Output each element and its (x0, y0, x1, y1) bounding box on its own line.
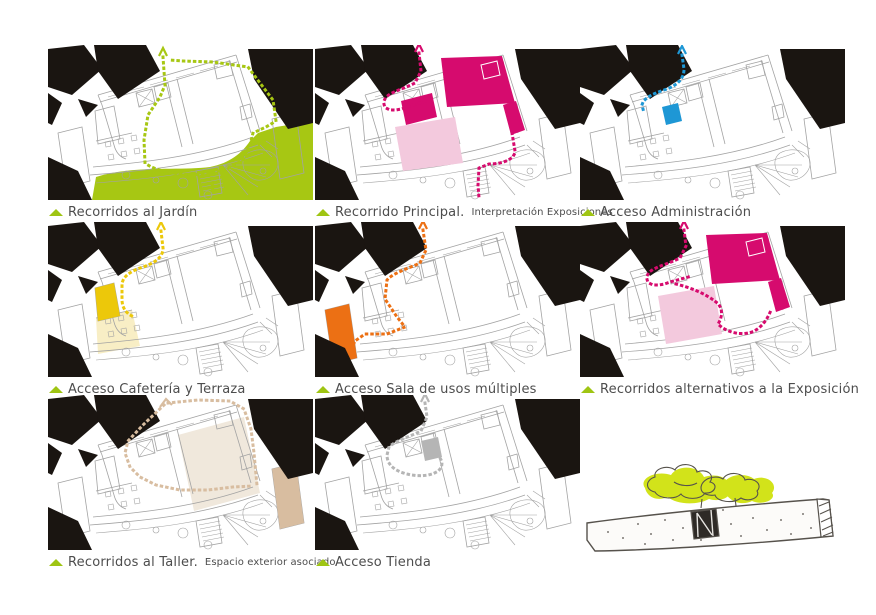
taller-area-light (178, 417, 260, 511)
exposicion-hall-area (706, 233, 780, 284)
panel-label: Recorridos alternativos a la Exposición (600, 382, 859, 397)
administracion-area (662, 103, 682, 125)
route-arrow (160, 399, 172, 407)
panel-label: Recorrido Principal. (335, 205, 465, 220)
route-arrow (157, 222, 165, 230)
exposiciones-hall-area (441, 56, 515, 107)
panel-acceso-sala: Acceso Sala de usos múltiples (315, 222, 580, 398)
caption-administracion: Acceso Administración (580, 203, 845, 221)
panel-label: Acceso Administración (600, 205, 751, 220)
legend-triangle-icon (48, 207, 64, 217)
panel-acceso-administracion: Acceso Administración (580, 45, 845, 221)
legend-triangle-icon (315, 207, 331, 217)
wall (587, 499, 833, 551)
hand-sketch (583, 462, 845, 564)
plan-acceso-tienda (315, 395, 580, 550)
plan-recorridos-alternativos (580, 222, 845, 377)
panel-label: Acceso Tienda (335, 555, 431, 570)
legend-triangle-icon (315, 557, 331, 567)
sketch-wall-elevation (583, 462, 845, 560)
caption-principal: Recorrido Principal. Interpretación Expo… (315, 203, 580, 221)
interpretacion-room-area (401, 93, 437, 125)
legend-triangle-icon (48, 384, 64, 394)
panel-recorridos-alternativos: Recorridos alternativos a la Exposición (580, 222, 845, 398)
route-arrow (680, 222, 688, 229)
exposicion-strip-area (768, 278, 790, 312)
cafeteria-area (95, 283, 120, 321)
panel-recorridos-taller: Recorridos al Taller. Espacio exterior a… (48, 395, 313, 571)
panel-label: Recorridos al Taller. (68, 555, 198, 570)
exposiciones-strip-area (503, 101, 525, 135)
exposicion-area-light (658, 286, 722, 344)
panel-recorrido-principal: Recorrido Principal. Interpretación Expo… (315, 45, 580, 221)
panel-acceso-tienda: Acceso Tienda (315, 395, 580, 571)
route-arrow (421, 395, 429, 402)
legend-triangle-icon (48, 557, 64, 567)
panel-label: Recorridos al Jardín (68, 205, 197, 220)
plan-recorrido-principal (315, 45, 580, 200)
route-arrow (419, 222, 427, 229)
interpretacion-area-light (395, 117, 463, 171)
panel-acceso-cafeteria: Acceso Cafetería y Terraza (48, 222, 313, 398)
caption-alternativos: Recorridos alternativos a la Exposición (580, 380, 845, 398)
caption-taller: Recorridos al Taller. Espacio exterior a… (48, 553, 313, 571)
legend-triangle-icon (580, 207, 596, 217)
tienda-area (421, 437, 442, 461)
route-arrow (159, 48, 167, 56)
plan-acceso-cafeteria (48, 222, 313, 377)
circulation-diagram-page: Recorridos al Jardín Recorrido Principal… (0, 0, 876, 615)
plan-recorridos-jardin (48, 45, 313, 200)
route-arrow (415, 45, 423, 52)
caption-tienda: Acceso Tienda (315, 553, 580, 571)
plan-acceso-sala (315, 222, 580, 377)
legend-triangle-icon (580, 384, 596, 394)
legend-triangle-icon (315, 384, 331, 394)
caption-jardin: Recorridos al Jardín (48, 203, 313, 221)
plan-recorridos-taller (48, 395, 313, 550)
plan-acceso-administracion (580, 45, 845, 200)
panel-recorridos-jardin: Recorridos al Jardín (48, 45, 313, 221)
